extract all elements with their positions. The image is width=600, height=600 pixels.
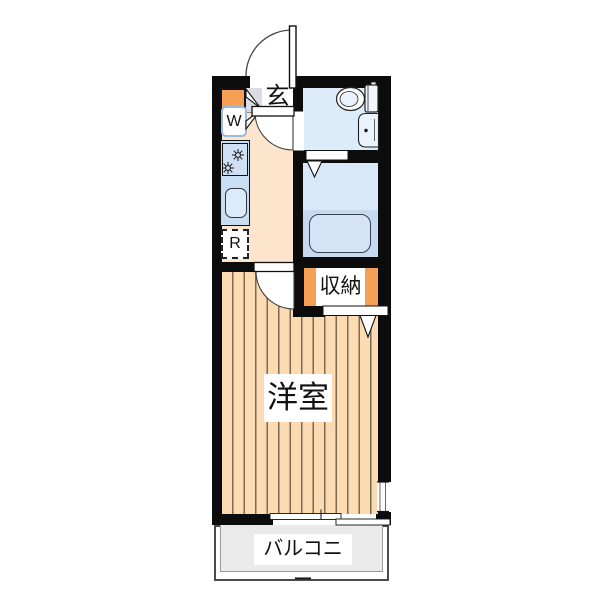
storage-side-panel-right: [365, 268, 378, 306]
wall-bottom-right: [376, 514, 391, 525]
room-toilet: [303, 88, 378, 150]
wall-kitchen-bath: [293, 150, 303, 262]
wall-storage-bottom: [293, 306, 325, 317]
entrance-label: 玄: [262, 81, 293, 112]
storage-label: 収納: [316, 268, 365, 306]
floorplan-canvas: 収納 バルコニー W R 玄 洋室: [0, 0, 600, 600]
refrigerator-box: R: [221, 229, 249, 259]
washing-machine-box: W: [221, 106, 247, 137]
bathtub-icon: [309, 214, 371, 253]
wall-kitchen-toilet: [293, 88, 303, 112]
wall-bath-storage: [303, 257, 391, 268]
wall-toilet-bath: [303, 150, 378, 163]
wall-top-right: [293, 76, 391, 88]
entrance-door-swing-icon: [246, 30, 292, 76]
wall-kitchen-room: [212, 262, 256, 272]
kitchen-sink-icon: [225, 188, 247, 218]
wall-bottom-left: [212, 514, 273, 525]
stove: [222, 143, 248, 176]
balcony-label: バルコニー: [254, 534, 352, 565]
western-room-label: 洋室: [264, 374, 332, 422]
wall-right-upper: [378, 76, 391, 482]
storage-side-panel-left: [304, 268, 316, 306]
side-window-icon: [377, 482, 389, 512]
